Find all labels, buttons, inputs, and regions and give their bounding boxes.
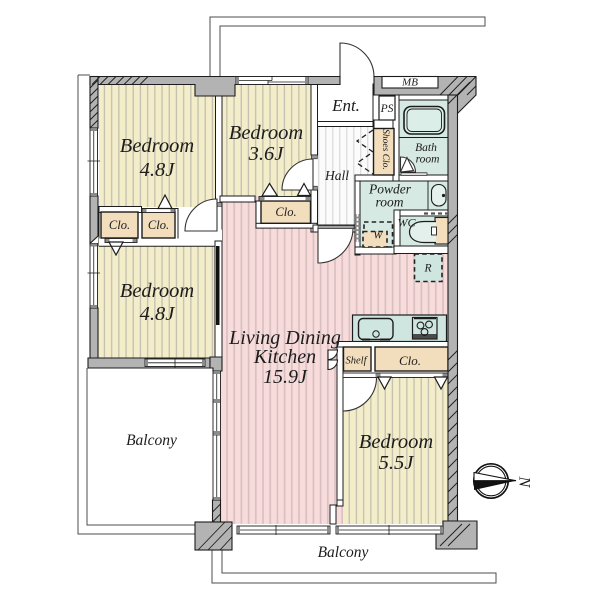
svg-text:Bedroom: Bedroom bbox=[359, 431, 433, 453]
svg-text:Shelf: Shelf bbox=[346, 356, 369, 367]
svg-text:Shoes Clo.: Shoes Clo. bbox=[380, 129, 390, 170]
svg-text:15.9J: 15.9J bbox=[263, 366, 308, 388]
svg-text:Balcony: Balcony bbox=[126, 432, 177, 449]
svg-text:N: N bbox=[516, 476, 533, 489]
svg-text:Bath: Bath bbox=[415, 142, 437, 154]
svg-text:R: R bbox=[423, 263, 431, 275]
svg-text:Clo.: Clo. bbox=[148, 218, 169, 232]
svg-text:Kitchen: Kitchen bbox=[253, 346, 316, 368]
svg-text:Ent.: Ent. bbox=[331, 96, 360, 115]
svg-text:Bedroom: Bedroom bbox=[120, 135, 194, 157]
svg-text:W: W bbox=[373, 230, 383, 242]
svg-text:Balcony: Balcony bbox=[318, 544, 369, 561]
svg-text:MB: MB bbox=[401, 77, 418, 89]
svg-text:Clo.: Clo. bbox=[275, 205, 296, 219]
svg-text:Clo.: Clo. bbox=[399, 353, 421, 368]
svg-text:Bedroom: Bedroom bbox=[229, 122, 303, 144]
svg-text:4.8J: 4.8J bbox=[140, 303, 176, 325]
svg-text:Clo.: Clo. bbox=[109, 218, 130, 232]
svg-text:Bedroom: Bedroom bbox=[120, 280, 194, 302]
svg-text:Hall: Hall bbox=[324, 168, 349, 183]
svg-text:PS: PS bbox=[380, 103, 394, 115]
svg-text:WC: WC bbox=[398, 216, 417, 230]
svg-text:5.5J: 5.5J bbox=[379, 452, 415, 474]
svg-text:room: room bbox=[416, 154, 440, 166]
svg-text:3.6J: 3.6J bbox=[248, 143, 285, 165]
svg-text:room: room bbox=[375, 195, 403, 210]
svg-text:4.8J: 4.8J bbox=[140, 159, 176, 181]
